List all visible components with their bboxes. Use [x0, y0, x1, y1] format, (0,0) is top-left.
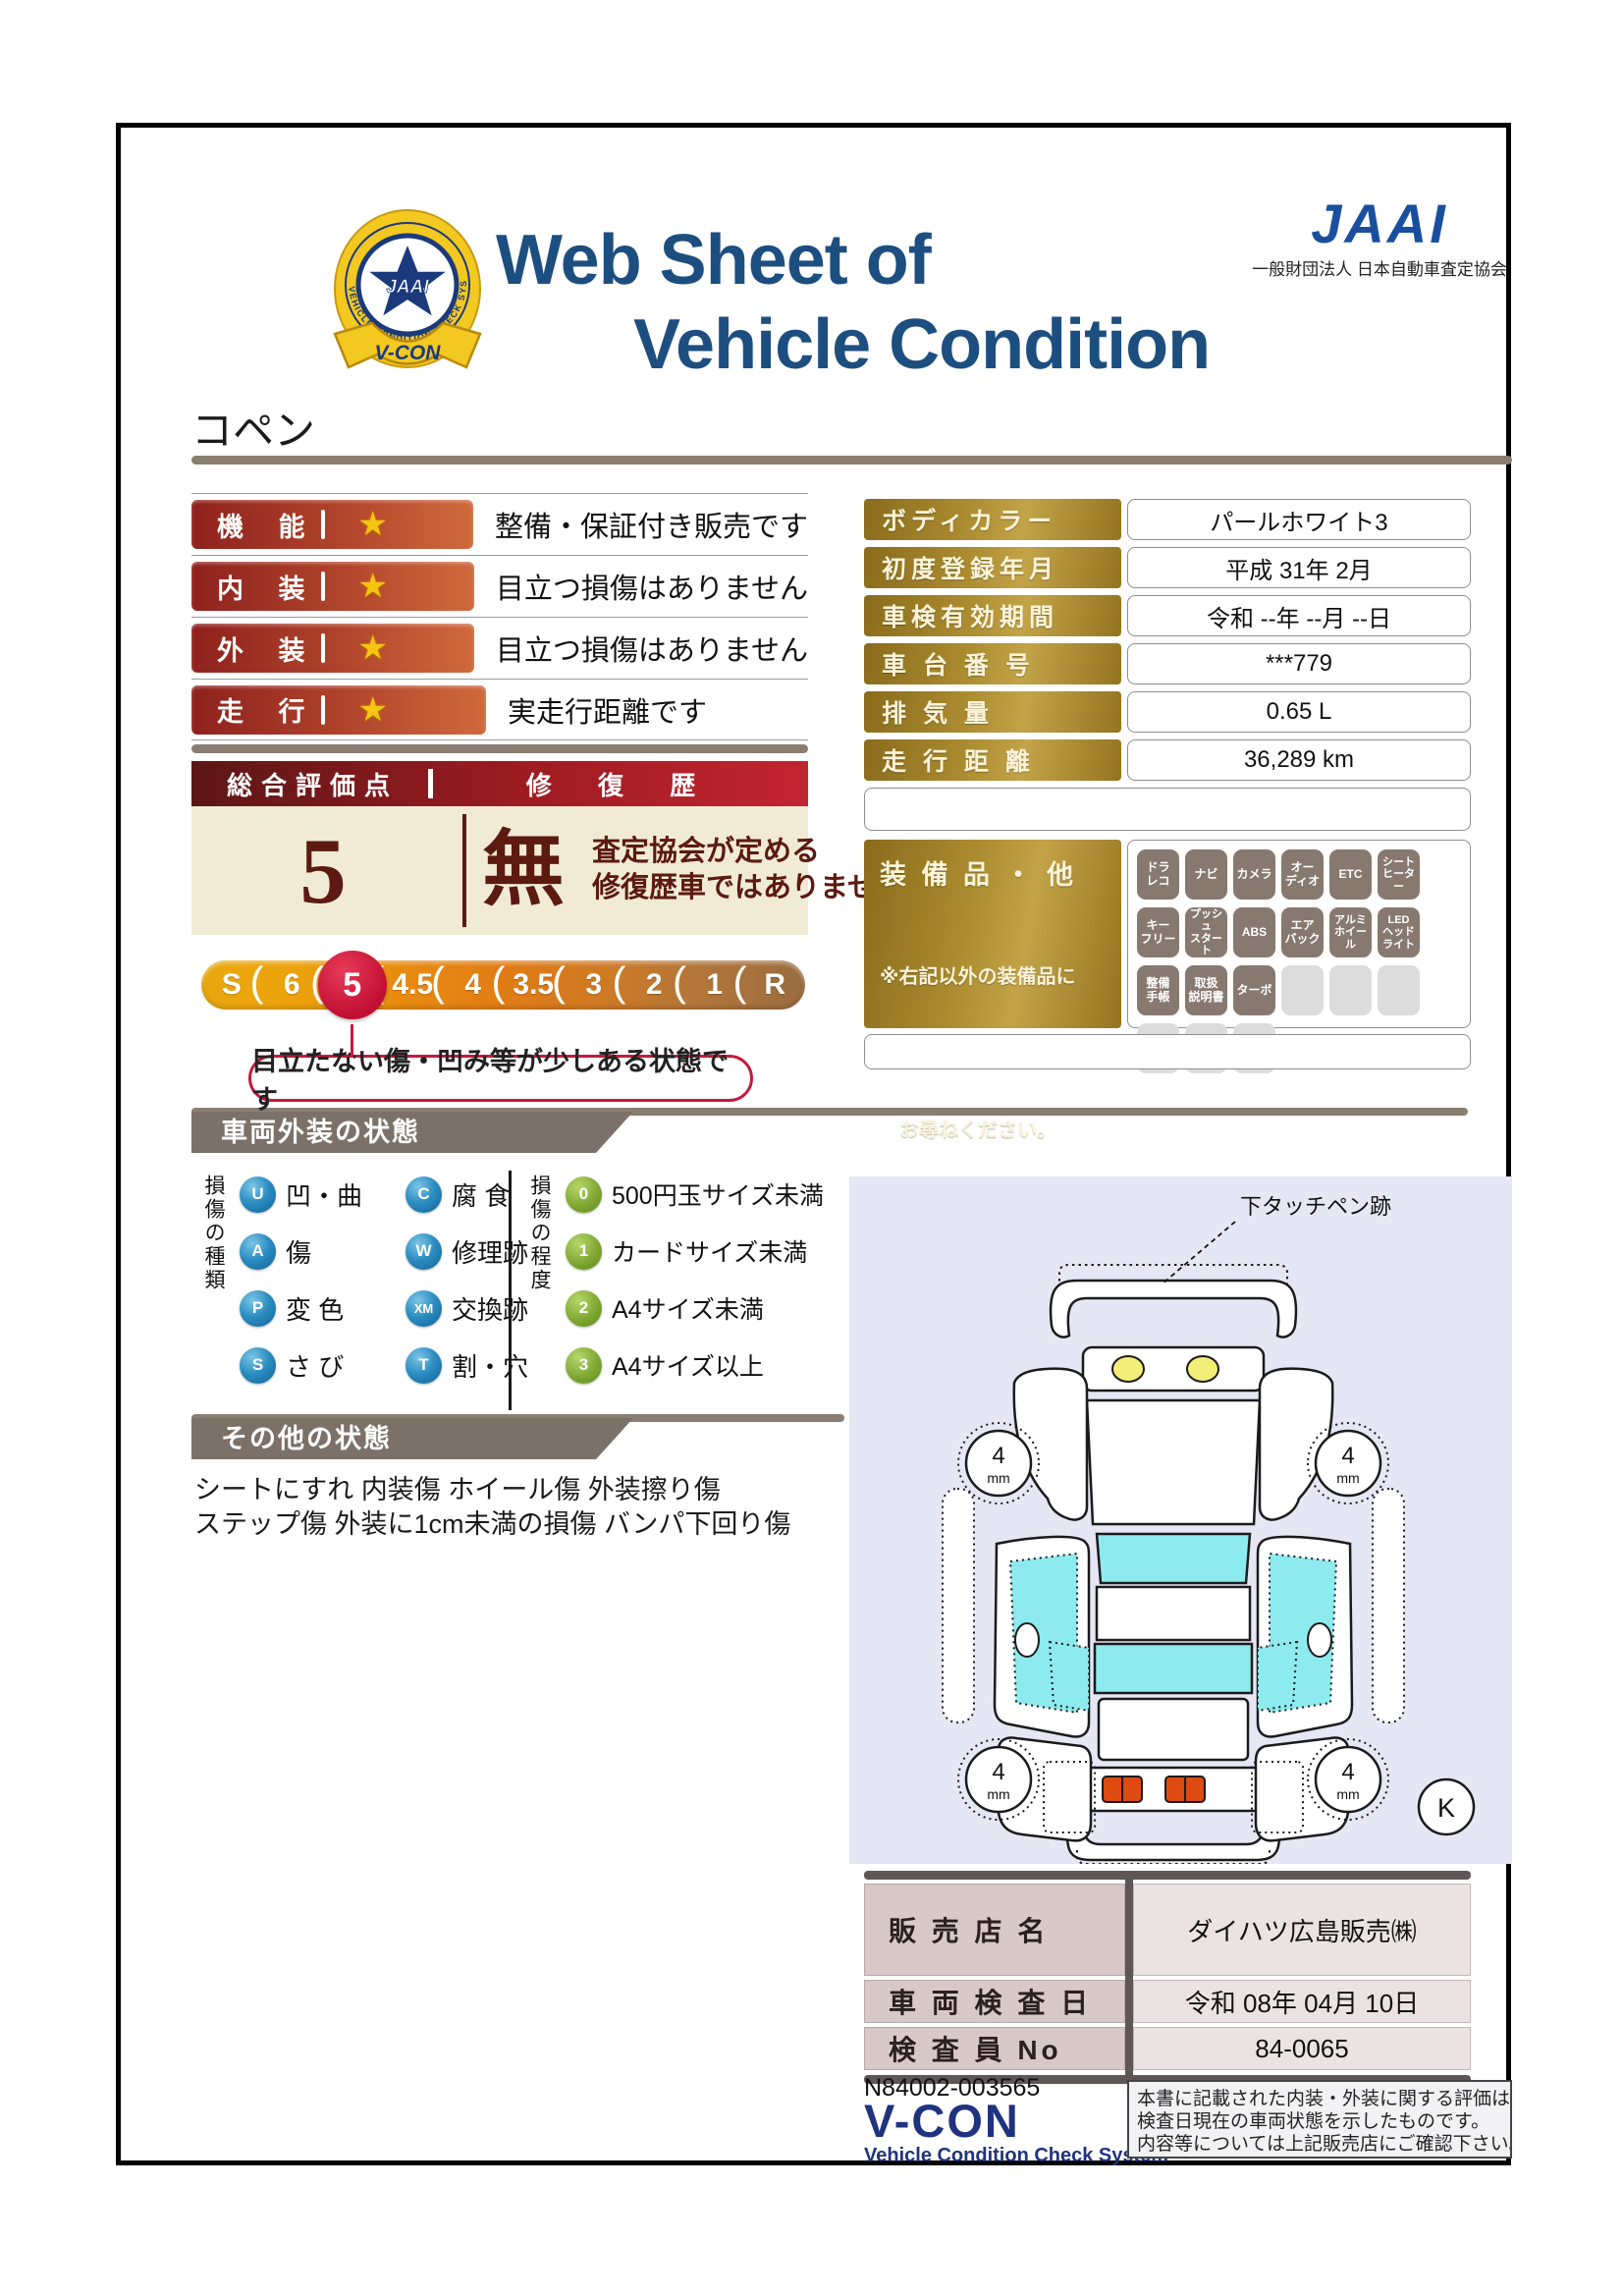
- damage-type-u-icon: U: [240, 1176, 276, 1213]
- rating-bar: 走 行 ★: [191, 685, 486, 735]
- score-callout: 目立たない傷・凹み等が少しある状態です: [248, 1055, 753, 1102]
- damage-type-label: さ び: [286, 1347, 396, 1384]
- equipment-badge-pushstart: プッシュ スタート: [1185, 907, 1227, 957]
- headlight-left: [1112, 1356, 1144, 1382]
- tire-tread-value: 4: [1341, 1443, 1354, 1469]
- info-row-mileage: 走 行 距 離 36,289 km: [864, 739, 1471, 781]
- equipment-note-line1: ※右記以外の装備品に: [880, 964, 1121, 990]
- vcon-wordmark: V-CON: [864, 2098, 1020, 2145]
- trunk: [1099, 1699, 1248, 1760]
- equipment-badge-empty: [1281, 965, 1324, 1015]
- damage-type-w-icon: W: [406, 1233, 442, 1270]
- equipment-badge-manual: 取扱 説明書: [1185, 965, 1227, 1015]
- damage-type-label: 交換跡: [452, 1290, 528, 1327]
- dealer-row-inspector-no: 検 査 員 No 84-0065: [864, 2027, 1471, 2070]
- damage-type-label: 変 色: [286, 1290, 396, 1327]
- disclaimer-line3: 内容等については上記販売店にご確認下さい。: [1137, 2133, 1502, 2156]
- scale-item-r: R: [745, 960, 806, 1010]
- rating-row-soukou: 走 行 ★ 実走行距離です: [191, 679, 808, 740]
- damage-type-label: 腐 食: [452, 1176, 510, 1213]
- damage-type-xm-icon: XM: [406, 1290, 442, 1327]
- rating-label: 走 行: [191, 690, 319, 729]
- dealer-label: 販 売 店 名: [864, 1884, 1125, 1976]
- info-label: 排 気 量: [864, 691, 1121, 733]
- equipment-panel: 装 備 品 ・ 他 ※右記以外の装備品に ついてはスタッフに お尋ねください。: [864, 840, 1121, 1028]
- rating-row-naisou: 内 装 ★ 目立つ損傷はありません: [191, 555, 808, 617]
- overall-score-body: 5 無 査定協会が定める 修復歴車ではありません: [191, 806, 808, 935]
- overall-score-box: 総合評価点 修 復 歴 5 無 査定協会が定める 修復歴車ではありません: [191, 761, 808, 935]
- ratings-list: 機 能 ★ 整備・保証付き販売です 内 装 ★ 目立つ損傷はありません 外 装 …: [191, 493, 808, 740]
- overall-score-title: 総合評価点: [191, 766, 399, 802]
- rating-row-kinou: 機 能 ★ 整備・保証付き販売です: [191, 493, 808, 555]
- rating-label: 内 装: [191, 568, 319, 606]
- repair-history-value: 無: [482, 814, 565, 924]
- rating-label: 機 能: [191, 506, 319, 544]
- car-damage-diagram: 4 mm 4 mm 4 mm 4 mm 下タッチペン跡 K: [849, 1176, 1512, 1864]
- info-row-displacement: 排 気 量 0.65 L: [864, 691, 1471, 733]
- table-top-bar: [864, 1871, 1471, 1880]
- empty-field: [864, 788, 1471, 831]
- tire-tread-unit: mm: [987, 1786, 1009, 1802]
- dealer-value: ダイハツ広島販売㈱: [1133, 1884, 1471, 1976]
- vcon-emblem-logo: JAAI VEHICLE CONDITION CHECK SYSTEM V-CO…: [319, 206, 496, 400]
- info-value: 令和 --年 --月 --日: [1127, 595, 1471, 636]
- rating-divider: [321, 695, 325, 725]
- dealer-table: 販 売 店 名 ダイハツ広島販売㈱ 車 両 検 査 日 令和 08年 04月 1…: [864, 1871, 1471, 2084]
- page-title-line2: Vehicle Condition: [633, 302, 1210, 387]
- emblem-jaai-text: JAAI: [386, 277, 429, 298]
- info-row-bodycolor: ボディカラー パールホワイト3: [864, 499, 1471, 540]
- tire-tread-unit: mm: [1336, 1470, 1359, 1486]
- rating-bar: 機 能 ★: [191, 500, 473, 549]
- body-divider: [462, 814, 466, 927]
- score-scale: S 6 5 4.5 4 3.5 3 2 1 R: [201, 960, 805, 1010]
- callout-connector: [351, 1024, 353, 1058]
- disclaimer-box: 本書に記載された内装・外装に関する評価は、車両 検査日現在の車両状態を示したもの…: [1127, 2080, 1512, 2159]
- info-label: ボディカラー: [864, 499, 1121, 540]
- rating-label: 外 装: [191, 629, 319, 668]
- damage-type-a-icon: A: [240, 1233, 276, 1270]
- tire-tread-unit: mm: [1336, 1786, 1359, 1802]
- car-diagram-svg: 4 mm 4 mm 4 mm 4 mm 下タッチペン跡 K: [849, 1176, 1512, 1864]
- disclaimer-line2: 検査日現在の車両状態を示したものです。: [1137, 2110, 1502, 2133]
- roof: [1097, 1587, 1250, 1640]
- divider-rule: [191, 456, 1512, 465]
- rating-description: 整備・保証付き販売です: [495, 504, 808, 545]
- corner-mark-letter: K: [1437, 1793, 1455, 1823]
- dealer-row-inspection-date: 車 両 検 査 日 令和 08年 04月 10日: [864, 1980, 1471, 2023]
- damage-degree-label: カードサイズ未満: [612, 1233, 807, 1269]
- jaai-logo: JAAI 一般財団法人 日本自動車査定協会: [1232, 196, 1527, 280]
- equipment-title: 装 備 品 ・ 他: [880, 853, 1121, 892]
- tire-tread-unit: mm: [987, 1470, 1009, 1486]
- repair-note-line1: 査定協会が定める: [592, 834, 904, 870]
- damage-type-label: 傷: [286, 1233, 396, 1270]
- star-icon: ★: [358, 629, 388, 668]
- info-value: 36,289 km: [1127, 739, 1471, 781]
- page-title: Web Sheet of Vehicle Condition: [496, 218, 1210, 387]
- legend-divider: [509, 1171, 512, 1410]
- vehicle-name: コペン: [191, 398, 315, 458]
- rating-description: 目立つ損傷はありません: [496, 566, 808, 607]
- damage-type-label: 修理跡: [452, 1233, 528, 1270]
- damage-type-s-icon: S: [240, 1347, 276, 1384]
- info-row-inspection: 車検有効期間 令和 --年 --月 --日: [864, 595, 1471, 636]
- info-label: 走 行 距 離: [864, 739, 1121, 781]
- rating-divider: [321, 572, 325, 601]
- equipment-badge-airbag: エア バック: [1281, 907, 1324, 957]
- repair-history-title: 修 復 歴: [433, 766, 808, 802]
- page-title-line1: Web Sheet of: [496, 218, 1210, 302]
- tire-tread-value: 4: [992, 1443, 1004, 1469]
- section-title-other: その他の状態: [191, 1418, 633, 1459]
- info-value: 0.65 L: [1127, 691, 1471, 733]
- jaai-wordmark: JAAI: [1232, 196, 1527, 251]
- section-title-exterior: 車両外装の状態: [191, 1112, 633, 1153]
- equipment-badge-seatheater: シート ヒーター: [1378, 849, 1420, 900]
- rating-row-gaisou: 外 装 ★ 目立つ損傷はありません: [191, 617, 808, 679]
- damage-degree-label: A4サイズ未満: [612, 1290, 764, 1326]
- other-state-line2: ステップ傷 外装に1cm未満の損傷 バンパ下回り傷: [194, 1507, 790, 1542]
- dealer-label: 車 両 検 査 日: [864, 1980, 1125, 2023]
- hood: [1087, 1400, 1260, 1524]
- damage-type-c-icon: C: [406, 1176, 442, 1213]
- other-state-line1: シートにすれ 内装傷 ホイール傷 外装擦り傷: [194, 1473, 790, 1507]
- rating-divider: [321, 633, 325, 663]
- equipment-badge-audio: オー ディオ: [1281, 849, 1324, 900]
- front-panel: [1083, 1347, 1264, 1391]
- equipment-badge-servicebook: 整備 手帳: [1137, 965, 1179, 1015]
- divider-rule: [191, 744, 808, 753]
- rating-description: 目立つ損傷はありません: [496, 628, 808, 669]
- info-value: パールホワイト3: [1127, 499, 1471, 540]
- equipment-note-line3: お尋ねください。: [880, 1118, 1121, 1143]
- vcon-subtitle: Vehicle Condition Check System: [864, 2145, 1168, 2167]
- annotation-touch-pen: 下タッチペン跡: [1240, 1194, 1391, 1219]
- damage-degree-0-icon: 0: [566, 1176, 602, 1213]
- equipment-badge-turbo: ターボ: [1233, 965, 1275, 1015]
- equipment-badge-empty: [1329, 965, 1372, 1015]
- overall-score-value: 5: [191, 812, 455, 930]
- equipment-badge-dorareco: ドラ レコ: [1137, 849, 1179, 900]
- tire-tread-value: 4: [1341, 1759, 1354, 1785]
- repair-history-note: 査定協会が定める 修復歴車ではありません: [592, 834, 904, 906]
- damage-type-t-icon: T: [406, 1347, 442, 1384]
- damage-degree-2-icon: 2: [566, 1290, 602, 1327]
- equipment-badge-keyfree: キー フリー: [1137, 907, 1179, 957]
- tire-tread-value: 4: [992, 1759, 1004, 1785]
- emblem-ribbon-text: V-CON: [375, 342, 442, 364]
- info-row-chassis: 車 台 番 号 ***779: [864, 643, 1471, 684]
- repair-note-line2: 修復歴車ではありません: [592, 870, 904, 906]
- info-row-firstreg: 初度登録年月 平成 31年 2月: [864, 547, 1471, 588]
- damage-degree-label: 500円玉サイズ未満: [612, 1176, 824, 1212]
- damage-type-p-icon: P: [240, 1290, 276, 1327]
- equipment-badge-alloywheel: アルミ ホイール: [1329, 907, 1372, 957]
- damage-degree-label: A4サイズ以上: [612, 1347, 764, 1383]
- damage-degree-axis-label: 損傷の程度: [524, 1175, 554, 1292]
- damage-type-label: 割・穴: [452, 1347, 528, 1384]
- equipment-badge-etc: ETC: [1329, 849, 1372, 900]
- empty-field: [864, 1034, 1471, 1069]
- info-label: 初度登録年月: [864, 547, 1121, 588]
- headlight-right: [1187, 1356, 1218, 1382]
- overall-score-header: 総合評価点 修 復 歴: [191, 761, 808, 806]
- scale-item-5-selected: 5: [322, 960, 383, 1010]
- dealer-label: 検 査 員 No: [864, 2027, 1125, 2070]
- info-label: 車検有効期間: [864, 595, 1121, 636]
- other-state-text: シートにすれ 内装傷 ホイール傷 外装擦り傷 ステップ傷 外装に1cm未満の損傷…: [194, 1473, 790, 1542]
- dealer-row-shop: 販 売 店 名 ダイハツ広島販売㈱: [864, 1884, 1471, 1976]
- damage-type-label: 凹・曲: [286, 1176, 396, 1213]
- info-value: 平成 31年 2月: [1127, 547, 1471, 588]
- equipment-badge-camera: カメラ: [1233, 849, 1275, 900]
- dealer-table-divider: [1125, 1880, 1133, 2076]
- selected-score-circle: 5: [318, 951, 387, 1019]
- equipment-badge-abs: ABS: [1233, 907, 1275, 957]
- dealer-value: 84-0065: [1133, 2027, 1471, 2070]
- star-icon: ★: [358, 567, 388, 606]
- damage-degree-3-icon: 3: [566, 1347, 602, 1384]
- info-value: ***779: [1127, 643, 1471, 684]
- windshield: [1097, 1534, 1250, 1583]
- rear-window: [1095, 1644, 1252, 1693]
- equipment-badges: ドラ レコ ナビ カメラ オー ディオ ETC シート ヒーター キー フリー …: [1127, 840, 1471, 1028]
- equipment-badge-empty: [1378, 965, 1420, 1015]
- damage-degree-1-icon: 1: [566, 1233, 602, 1270]
- jaai-organization-name: 一般財団法人 日本自動車査定協会: [1232, 255, 1527, 280]
- vcon-emblem-svg: JAAI VEHICLE CONDITION CHECK SYSTEM V-CO…: [319, 206, 496, 395]
- star-icon: ★: [358, 690, 388, 730]
- equipment-badge-navi: ナビ: [1185, 849, 1227, 900]
- rating-bar: 内 装 ★: [191, 562, 474, 611]
- disclaimer-line1: 本書に記載された内装・外装に関する評価は、車両: [1137, 2088, 1502, 2110]
- dealer-value: 令和 08年 04月 10日: [1133, 1980, 1471, 2023]
- rating-description: 実走行距離です: [508, 689, 707, 731]
- rating-bar: 外 装 ★: [191, 624, 474, 673]
- damage-type-axis-label: 損傷の種類: [198, 1175, 228, 1292]
- info-label: 車 台 番 号: [864, 643, 1121, 684]
- damage-legend: 損傷の種類 U 凹・曲 C 腐 食 A 傷 W 修理跡 P 変 色 XM 交換跡…: [196, 1171, 825, 1410]
- equipment-badge-ledheadlight: LED ヘッド ライト: [1378, 907, 1420, 957]
- rating-divider: [321, 510, 325, 539]
- star-icon: ★: [358, 505, 388, 544]
